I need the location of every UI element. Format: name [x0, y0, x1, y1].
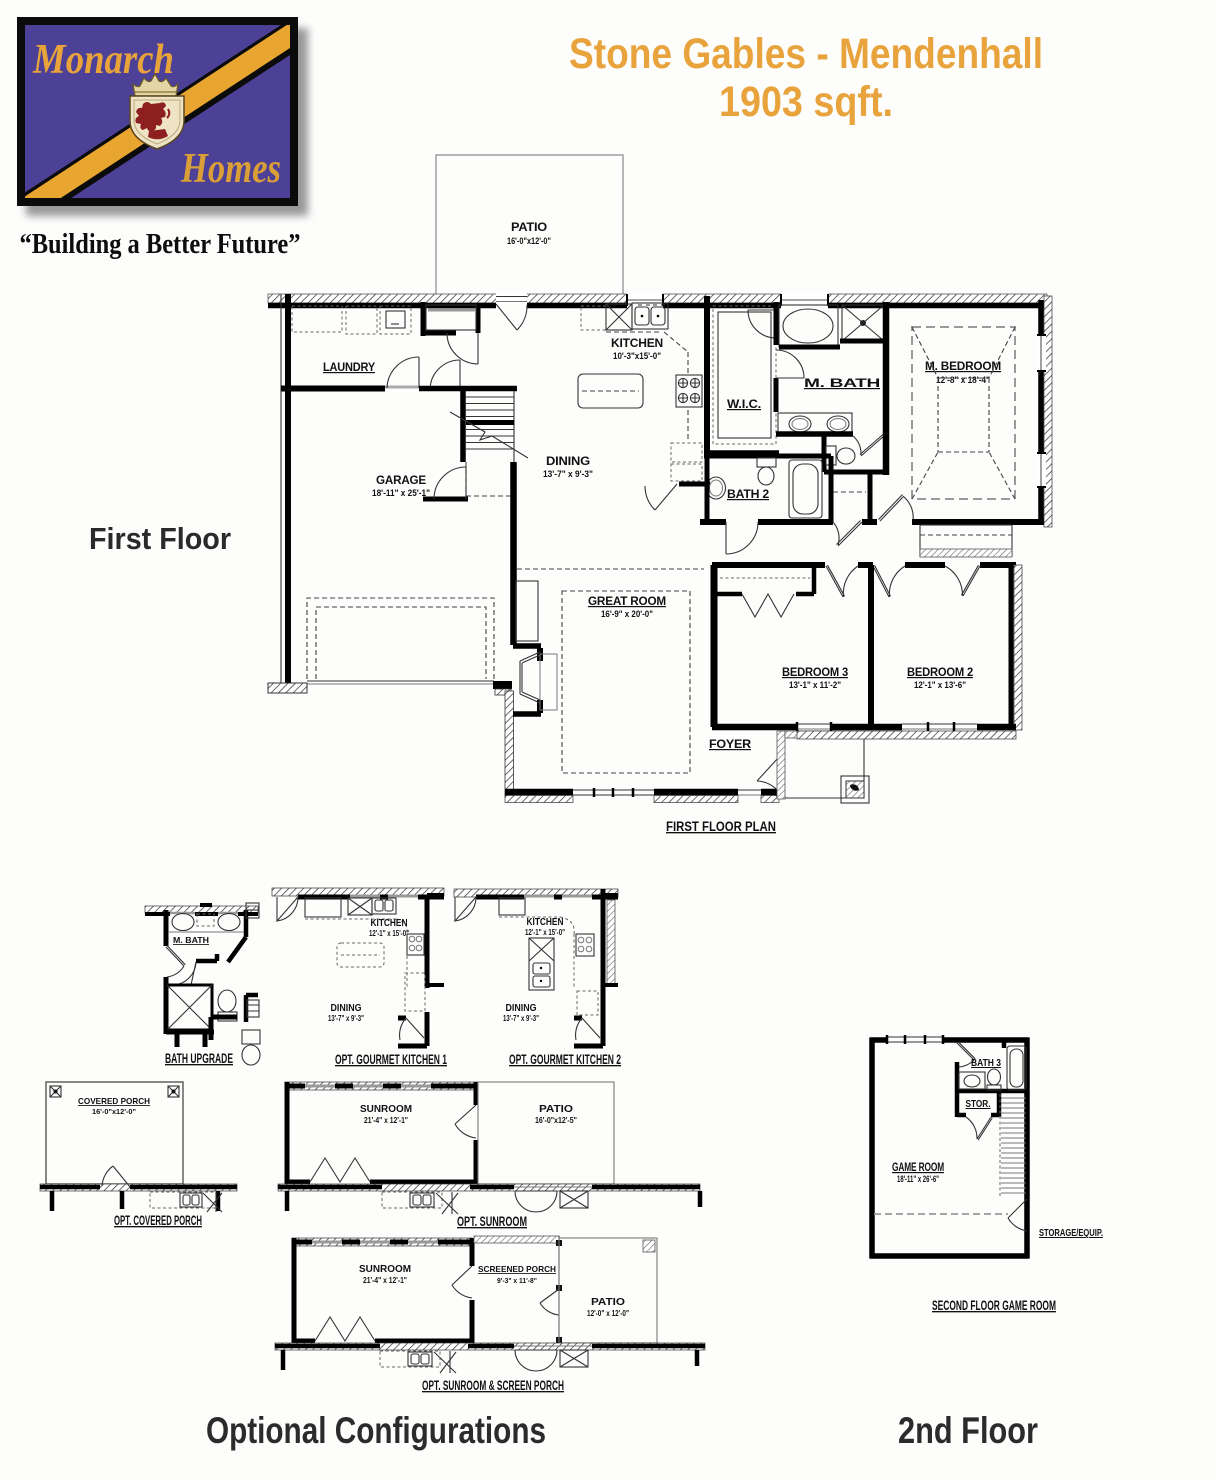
svg-text:12'-0" x 12'-0": 12'-0" x 12'-0"	[587, 1308, 629, 1318]
svg-text:SUNROOM: SUNROOM	[360, 1104, 412, 1115]
svg-text:13'-1" x 11'-2": 13'-1" x 11'-2"	[789, 680, 841, 691]
svg-text:13'-7" x 9'-3": 13'-7" x 9'-3"	[328, 1013, 364, 1023]
svg-text:BEDROOM 2: BEDROOM 2	[907, 665, 973, 679]
svg-text:12'-1" x 13'-6": 12'-1" x 13'-6"	[914, 680, 966, 691]
svg-text:12'-8" x 18'-4": 12'-8" x 18'-4"	[936, 375, 990, 386]
svg-text:OPT. COVERED PORCH: OPT. COVERED PORCH	[114, 1213, 202, 1228]
svg-text:Stone Gables - Mendenhall: Stone Gables - Mendenhall	[569, 30, 1043, 78]
svg-text:16'-9" x 20'-0": 16'-9" x 20'-0"	[601, 609, 653, 620]
svg-text:FIRST FLOOR PLAN: FIRST FLOOR PLAN	[666, 819, 776, 834]
svg-text:18'-11" x 26'-6": 18'-11" x 26'-6"	[897, 1174, 939, 1185]
svg-text:OPT. SUNROOM & SCREEN PORCH: OPT. SUNROOM & SCREEN PORCH	[422, 1378, 564, 1393]
svg-text:BATH 3: BATH 3	[971, 1058, 1001, 1069]
svg-text:FOYER: FOYER	[709, 737, 752, 751]
svg-text:PATIO: PATIO	[591, 1297, 625, 1308]
svg-text:12'-1" x 15'-0": 12'-1" x 15'-0"	[525, 927, 565, 937]
svg-text:SECOND FLOOR GAME ROOM: SECOND FLOOR GAME ROOM	[932, 1298, 1056, 1313]
svg-text:Homes: Homes	[180, 146, 281, 192]
svg-text:16'-0"x12'-0": 16'-0"x12'-0"	[92, 1107, 136, 1116]
svg-text:First Floor: First Floor	[89, 521, 231, 556]
svg-text:18'-11" x 25'-1": 18'-11" x 25'-1"	[372, 488, 430, 499]
svg-text:SUNROOM: SUNROOM	[359, 1264, 411, 1275]
svg-text:LAUNDRY: LAUNDRY	[323, 360, 375, 374]
svg-text:M. BATH: M. BATH	[804, 376, 880, 390]
svg-text:Monarch: Monarch	[32, 37, 174, 83]
svg-text:21'-4" x 12'-1": 21'-4" x 12'-1"	[364, 1115, 408, 1125]
svg-text:16'-0"x12'-0": 16'-0"x12'-0"	[507, 236, 551, 247]
svg-text:M. BEDROOM: M. BEDROOM	[925, 359, 1001, 373]
svg-text:GAME ROOM: GAME ROOM	[892, 1160, 944, 1174]
svg-text:STOR.: STOR.	[966, 1099, 991, 1110]
svg-text:OPT. GOURMET KITCHEN 2: OPT. GOURMET KITCHEN 2	[509, 1052, 621, 1067]
svg-text:SCREENED PORCH: SCREENED PORCH	[478, 1264, 556, 1274]
svg-text:16'-0"x12'-5": 16'-0"x12'-5"	[535, 1115, 577, 1125]
svg-text:W.I.C.: W.I.C.	[727, 397, 761, 411]
svg-text:10'-3"x15'-0": 10'-3"x15'-0"	[613, 351, 661, 362]
svg-text:9'-3" x 11'-8": 9'-3" x 11'-8"	[497, 1276, 537, 1285]
svg-text:M. BATH: M. BATH	[173, 935, 209, 945]
svg-text:OPT. GOURMET KITCHEN 1: OPT. GOURMET KITCHEN 1	[335, 1052, 447, 1067]
svg-text:“Building a Better Future”: “Building a Better Future”	[20, 229, 301, 260]
svg-text:OPT. SUNROOM: OPT. SUNROOM	[457, 1214, 527, 1229]
svg-text:COVERED PORCH: COVERED PORCH	[78, 1096, 150, 1106]
svg-text:PATIO: PATIO	[511, 220, 547, 234]
svg-text:PATIO: PATIO	[539, 1104, 573, 1115]
svg-text:13'-7" x 9'-3": 13'-7" x 9'-3"	[503, 1013, 539, 1023]
svg-text:21'-4" x 12'-1": 21'-4" x 12'-1"	[363, 1275, 407, 1285]
svg-text:DINING: DINING	[546, 454, 590, 468]
svg-text:12'-1" x 15'-0": 12'-1" x 15'-0"	[369, 928, 409, 938]
svg-text:BATH UPGRADE: BATH UPGRADE	[165, 1051, 233, 1066]
svg-text:13'-7" x 9'-3": 13'-7" x 9'-3"	[543, 469, 593, 480]
svg-text:Optional Configurations: Optional Configurations	[206, 1410, 546, 1451]
svg-text:BEDROOM 3: BEDROOM 3	[782, 665, 848, 679]
svg-text:BATH 2: BATH 2	[727, 487, 770, 501]
svg-text:2nd Floor: 2nd Floor	[898, 1410, 1038, 1451]
svg-text:GARAGE: GARAGE	[376, 473, 426, 487]
svg-text:GREAT ROOM: GREAT ROOM	[588, 594, 666, 608]
svg-text:KITCHEN: KITCHEN	[611, 336, 663, 350]
svg-text:STORAGE/EQUIP.: STORAGE/EQUIP.	[1039, 1228, 1103, 1239]
svg-text:1903 sqft.: 1903 sqft.	[719, 78, 893, 126]
